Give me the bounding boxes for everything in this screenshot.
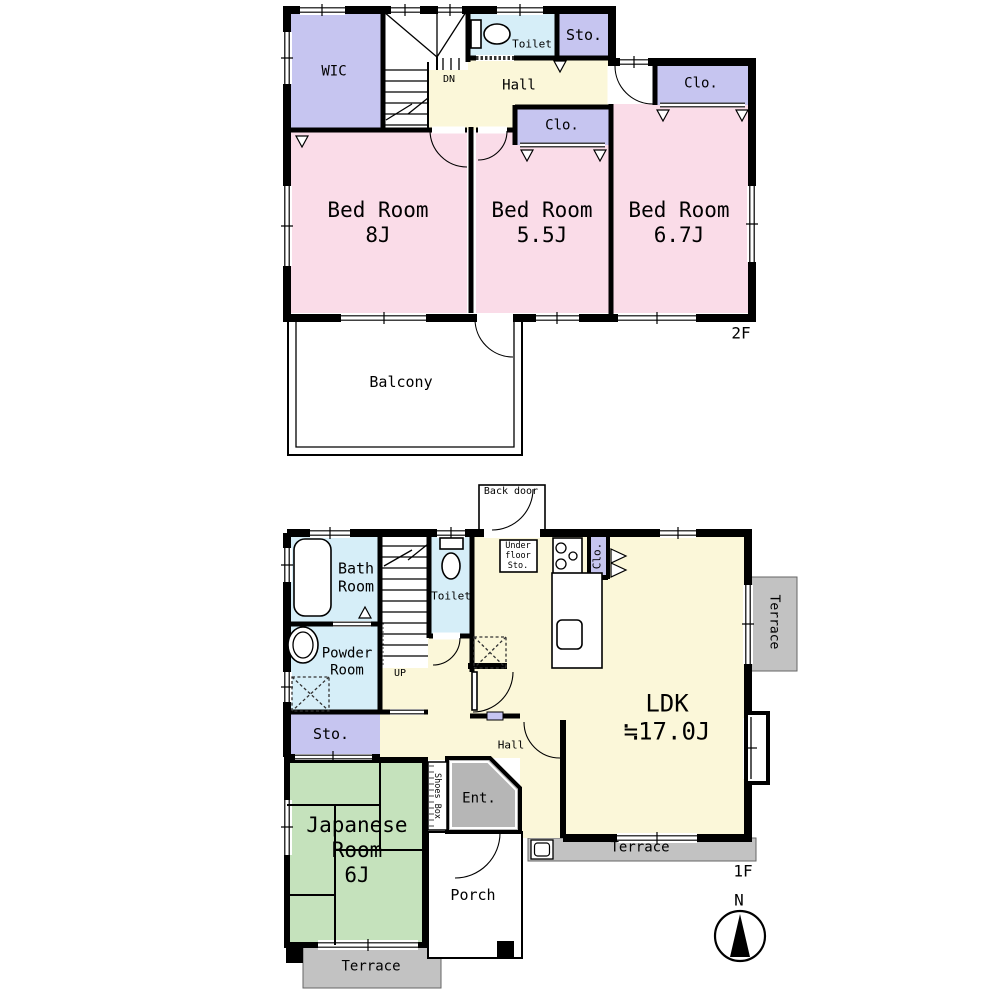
label-storage-1f: Sto. xyxy=(313,726,349,744)
toilet-tank-2f-icon xyxy=(471,20,481,48)
label-bedroom-55j: Bed Room 5.5J xyxy=(491,198,592,248)
compass-icon xyxy=(715,911,765,961)
label-japanese-room: Japanese Room 6J xyxy=(306,813,407,887)
label-storage-2f: Sto. xyxy=(566,27,602,45)
label-terrace-south: Terrace xyxy=(610,840,669,857)
toilet-tank-1f-icon xyxy=(440,538,463,549)
label-entrance: Ent. xyxy=(462,791,496,808)
label-bedroom-67j: Bed Room 6.7J xyxy=(628,198,729,248)
label-terrace-west: Terrace xyxy=(341,959,400,976)
label-back-door: Back door xyxy=(484,486,538,498)
stove-icon xyxy=(553,538,582,574)
post xyxy=(286,946,303,963)
label-toilet-1f: Toilet xyxy=(431,591,471,604)
room-hall-1f-b xyxy=(380,716,447,760)
toilet-bowl-1f-icon xyxy=(442,553,460,579)
post xyxy=(497,941,514,958)
label-closet-kitchen: Clo. xyxy=(592,543,605,570)
label-closet-hall: Clo. xyxy=(684,76,718,93)
label-toilet-2f: Toilet xyxy=(512,39,552,52)
label-powder-room: Powder Room xyxy=(322,645,373,678)
label-shoes-box: Shoes Box xyxy=(432,773,442,819)
label-north: N xyxy=(734,892,744,911)
label-closet-bed: Clo. xyxy=(545,118,579,135)
label-hall-2f: Hall xyxy=(502,78,536,95)
label-hall-1f: Hall xyxy=(498,740,525,753)
floor-plan-drawing xyxy=(0,0,1000,1000)
label-ldk: LDK ≒17.0J xyxy=(624,690,711,747)
label-down: DN xyxy=(443,74,455,86)
label-floor-1f: 1F xyxy=(733,863,752,882)
kitchen-sink-icon xyxy=(557,620,582,649)
toilet-bowl-2f-icon xyxy=(484,24,510,44)
label-wic: WIC xyxy=(321,64,346,81)
label-terrace-east: Terrace xyxy=(766,595,781,650)
label-up: UP xyxy=(394,668,406,680)
label-under-floor-sto: Under floor Sto. xyxy=(505,541,531,571)
bathtub-icon xyxy=(294,539,331,616)
floor-plan: WIC Toilet Sto. Hall DN Clo. Clo. Bed Ro… xyxy=(0,0,1000,1000)
label-porch: Porch xyxy=(450,887,495,905)
label-balcony: Balcony xyxy=(369,374,432,392)
label-bedroom-8j: Bed Room 8J xyxy=(327,198,428,248)
bay-window xyxy=(744,713,768,783)
label-bathroom: Bath Room xyxy=(338,560,374,595)
hall-niche xyxy=(487,712,503,720)
label-floor-2f: 2F xyxy=(731,325,750,344)
